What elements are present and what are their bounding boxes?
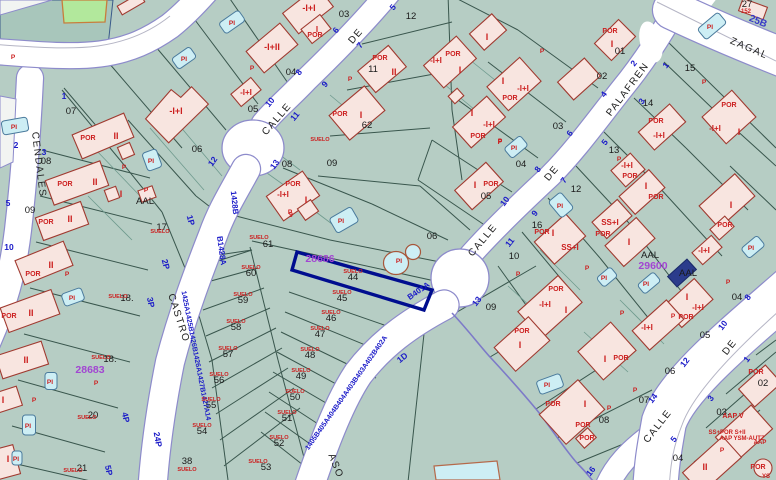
svg-text:I: I xyxy=(305,195,308,205)
svg-text:-I+I: -I+I xyxy=(621,161,633,170)
svg-text:SUELO: SUELO xyxy=(233,292,253,298)
svg-text:15: 15 xyxy=(685,63,696,74)
svg-text:PI: PI xyxy=(47,379,53,386)
svg-text:POR: POR xyxy=(750,464,765,471)
svg-text:POR: POR xyxy=(575,422,590,429)
svg-text:I: I xyxy=(584,399,587,409)
svg-text:04: 04 xyxy=(673,453,684,464)
svg-text:PI: PI xyxy=(13,456,19,463)
svg-text:PI: PI xyxy=(69,295,75,302)
svg-text:PI: PI xyxy=(544,382,550,389)
svg-text:I: I xyxy=(730,200,733,210)
svg-text:SUELO: SUELO xyxy=(241,265,261,271)
svg-text:PI: PI xyxy=(643,281,649,288)
svg-text:POR: POR xyxy=(545,401,560,408)
svg-text:II: II xyxy=(391,67,396,77)
svg-text:I: I xyxy=(471,108,474,118)
svg-text:PI: PI xyxy=(11,124,17,131)
svg-text:SUELO: SUELO xyxy=(300,347,320,353)
svg-text:04: 04 xyxy=(516,159,527,170)
svg-text:II: II xyxy=(23,355,28,365)
svg-text:3: 3 xyxy=(42,147,47,157)
svg-text:II: II xyxy=(48,260,53,270)
svg-text:PI: PI xyxy=(229,20,235,27)
svg-text:POR: POR xyxy=(613,355,628,362)
svg-text:09: 09 xyxy=(486,302,497,313)
svg-text:12: 12 xyxy=(571,184,582,195)
svg-text:P: P xyxy=(122,164,127,171)
svg-text:38: 38 xyxy=(182,456,193,467)
svg-text:09: 09 xyxy=(327,158,338,169)
svg-text:P: P xyxy=(498,138,503,145)
svg-text:02: 02 xyxy=(758,378,769,389)
svg-text:P: P xyxy=(94,380,99,387)
svg-text:PI: PI xyxy=(181,56,187,63)
svg-text:P: P xyxy=(144,187,149,194)
svg-text:1: 1 xyxy=(62,91,67,101)
svg-text:POR: POR xyxy=(470,133,485,140)
svg-text:P: P xyxy=(11,54,16,61)
svg-text:PI: PI xyxy=(601,275,607,282)
svg-text:I: I xyxy=(360,110,363,120)
svg-text:I: I xyxy=(552,228,555,238)
svg-text:POR: POR xyxy=(717,222,732,229)
svg-text:POR: POR xyxy=(285,181,300,188)
svg-text:2: 2 xyxy=(14,140,19,150)
svg-text:I: I xyxy=(565,305,568,315)
svg-text:POR: POR xyxy=(38,219,53,226)
svg-text:SUELO: SUELO xyxy=(226,319,246,325)
svg-text:SUELO: SUELO xyxy=(218,346,238,352)
svg-text:-I+I: -I+I xyxy=(641,323,653,332)
svg-text:II: II xyxy=(92,177,97,187)
svg-text:POR: POR xyxy=(648,194,663,201)
svg-text:POR: POR xyxy=(579,435,594,442)
svg-text:02: 02 xyxy=(597,71,608,82)
svg-text:II: II xyxy=(702,462,707,472)
svg-text:I: I xyxy=(738,127,741,137)
svg-text:SUELO: SUELO xyxy=(192,423,212,429)
svg-text:62: 62 xyxy=(362,120,373,131)
svg-text:SUELO: SUELO xyxy=(321,310,341,316)
svg-text:SUELO: SUELO xyxy=(150,229,170,235)
svg-text:I: I xyxy=(459,65,462,75)
svg-text:SUELO: SUELO xyxy=(91,355,111,361)
svg-text:I: I xyxy=(686,292,689,302)
svg-text:AAP: AAP xyxy=(754,440,767,446)
svg-text:12: 12 xyxy=(406,11,417,22)
svg-text:P: P xyxy=(633,387,638,394)
svg-text:I: I xyxy=(2,395,5,405)
svg-text:II: II xyxy=(113,131,118,141)
svg-text:POR: POR xyxy=(678,314,693,321)
svg-text:I: I xyxy=(486,32,489,42)
svg-text:P: P xyxy=(288,209,293,216)
svg-text:PI: PI xyxy=(557,203,563,210)
svg-text:10: 10 xyxy=(509,251,520,262)
svg-text:-I+I: -I+I xyxy=(539,300,551,309)
svg-text:PI: PI xyxy=(338,218,344,225)
svg-text:-I+II: -I+II xyxy=(264,42,280,52)
svg-text:P: P xyxy=(620,310,625,317)
svg-text:POR: POR xyxy=(648,118,663,125)
svg-text:-I+I: -I+I xyxy=(169,106,182,116)
svg-text:AAP V: AAP V xyxy=(722,413,744,420)
svg-text:28683: 28683 xyxy=(75,364,104,376)
svg-text:01: 01 xyxy=(615,46,626,57)
svg-text:PI: PI xyxy=(511,145,517,152)
svg-text:I: I xyxy=(604,354,607,364)
svg-text:-I+I: -I+I xyxy=(302,3,315,13)
svg-text:P: P xyxy=(720,447,725,454)
svg-text:05: 05 xyxy=(248,104,259,115)
svg-text:SUELO: SUELO xyxy=(201,397,221,403)
svg-text:11: 11 xyxy=(368,64,378,75)
svg-text:SS+I: SS+I xyxy=(601,218,619,227)
svg-text:SUELO: SUELO xyxy=(332,290,352,296)
svg-text:06: 06 xyxy=(192,144,203,155)
svg-text:POR: POR xyxy=(595,231,610,238)
svg-text:I: I xyxy=(628,237,631,247)
svg-text:POR: POR xyxy=(1,313,16,320)
svg-text:YS: YS xyxy=(762,474,770,480)
svg-text:POR: POR xyxy=(514,328,529,335)
svg-text:SUELO: SUELO xyxy=(277,410,297,416)
svg-text:AAL: AAL xyxy=(136,196,154,207)
svg-text:SUELO: SUELO xyxy=(310,137,330,143)
svg-text:POR: POR xyxy=(372,55,387,62)
svg-text:P: P xyxy=(585,265,590,272)
svg-text:-I+I: -I+I xyxy=(240,88,252,97)
svg-text:POR: POR xyxy=(445,51,460,58)
svg-text:POR: POR xyxy=(721,102,736,109)
svg-text:05: 05 xyxy=(700,330,711,341)
svg-text:06: 06 xyxy=(665,366,676,377)
svg-text:152: 152 xyxy=(741,9,752,15)
svg-text:SUELO: SUELO xyxy=(108,294,128,300)
svg-text:-I+I: -I+I xyxy=(692,303,704,312)
svg-text:06: 06 xyxy=(427,231,438,242)
svg-text:03: 03 xyxy=(339,9,350,20)
svg-text:POR: POR xyxy=(307,32,322,39)
svg-text:-I+I: -I+I xyxy=(430,56,442,65)
svg-text:I: I xyxy=(502,76,505,86)
svg-text:P: P xyxy=(617,156,622,163)
svg-text:P: P xyxy=(348,76,353,83)
svg-text:II: II xyxy=(67,214,72,224)
svg-text:P: P xyxy=(32,397,37,404)
svg-text:-I+I: -I+I xyxy=(698,246,710,255)
svg-text:SUELO: SUELO xyxy=(63,468,83,474)
svg-text:POR: POR xyxy=(80,135,95,142)
svg-text:08: 08 xyxy=(282,159,293,170)
svg-text:PI: PI xyxy=(25,423,31,430)
svg-text:P: P xyxy=(726,279,731,286)
svg-text:I: I xyxy=(645,181,648,191)
svg-text:P: P xyxy=(65,271,70,278)
svg-text:-I+I: -I+I xyxy=(483,120,495,129)
svg-text:SUELO: SUELO xyxy=(285,389,305,395)
svg-text:07: 07 xyxy=(66,106,77,117)
svg-text:SUELO: SUELO xyxy=(291,368,311,374)
svg-text:29600: 29600 xyxy=(638,260,667,272)
svg-text:II: II xyxy=(28,308,33,318)
svg-text:SUELO: SUELO xyxy=(177,467,197,473)
svg-text:AAL: AAL xyxy=(679,268,697,279)
svg-text:I: I xyxy=(611,39,614,49)
svg-text:POR: POR xyxy=(57,181,72,188)
svg-text:08: 08 xyxy=(41,156,52,167)
svg-text:SUELO: SUELO xyxy=(269,435,289,441)
svg-text:13: 13 xyxy=(609,145,620,156)
svg-text:SUELO: SUELO xyxy=(249,235,269,241)
svg-text:-I+I: -I+I xyxy=(709,124,721,133)
svg-text:POR: POR xyxy=(25,271,40,278)
svg-text:I: I xyxy=(7,454,10,464)
svg-text:P: P xyxy=(516,271,521,278)
svg-text:SS+I: SS+I xyxy=(561,243,579,252)
svg-text:SUELO: SUELO xyxy=(77,415,97,421)
svg-text:P: P xyxy=(250,65,255,72)
svg-text:PI: PI xyxy=(148,158,154,165)
svg-text:PI: PI xyxy=(748,245,754,252)
svg-text:5: 5 xyxy=(6,198,11,208)
svg-text:28686: 28686 xyxy=(305,253,334,265)
svg-text:10: 10 xyxy=(4,242,14,252)
svg-text:POR: POR xyxy=(483,181,498,188)
svg-text:04: 04 xyxy=(732,292,743,303)
svg-text:P: P xyxy=(540,48,545,55)
svg-text:SUELO: SUELO xyxy=(343,269,363,275)
svg-text:08: 08 xyxy=(599,415,610,426)
svg-text:SUELO: SUELO xyxy=(209,372,229,378)
svg-text:SUELO: SUELO xyxy=(248,459,268,465)
svg-text:POR: POR xyxy=(502,95,517,102)
svg-text:-I+I: -I+I xyxy=(653,131,665,140)
svg-text:I: I xyxy=(120,189,123,199)
svg-text:09: 09 xyxy=(25,205,36,216)
svg-text:POR: POR xyxy=(748,369,763,376)
svg-text:POR: POR xyxy=(534,229,549,236)
svg-text:05: 05 xyxy=(481,191,492,202)
svg-text:-I+I: -I+I xyxy=(277,190,289,199)
svg-text:03: 03 xyxy=(553,121,564,132)
svg-text:-I+I: -I+I xyxy=(517,84,529,93)
svg-text:PI: PI xyxy=(396,258,402,265)
svg-text:I: I xyxy=(519,340,522,350)
svg-text:POR: POR xyxy=(548,286,563,293)
svg-text:I: I xyxy=(474,180,477,190)
svg-text:SUELO: SUELO xyxy=(310,326,330,332)
svg-text:PI: PI xyxy=(707,24,713,31)
svg-text:P: P xyxy=(607,405,612,412)
svg-text:P: P xyxy=(671,313,676,320)
svg-text:P: P xyxy=(702,79,707,86)
svg-text:POR: POR xyxy=(602,28,617,35)
svg-text:POR: POR xyxy=(332,111,347,118)
svg-text:POR: POR xyxy=(622,173,637,180)
